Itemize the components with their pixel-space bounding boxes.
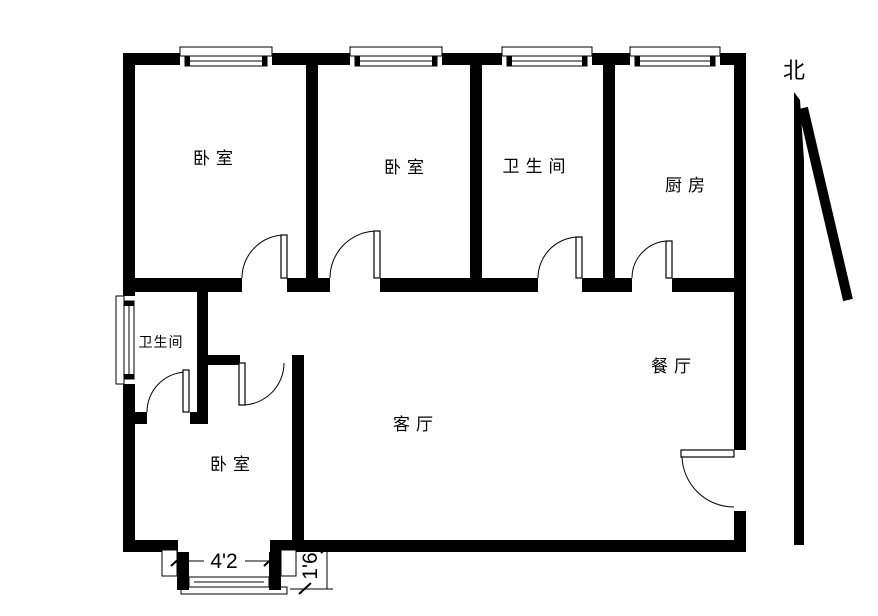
bay-window-frame-right (281, 550, 296, 576)
label-dining-room: 餐厅 (651, 357, 697, 377)
door-kitchen (666, 241, 672, 278)
door-bathroom-top (576, 237, 582, 278)
wall-main-seg5 (672, 278, 734, 292)
label-bathroom-left: 卫生间 (139, 335, 184, 351)
wall-bed2-bath (470, 65, 482, 278)
door-bathroom-left (183, 370, 189, 412)
floor-plan-page: 4'2 1'6 北 卧室 卧室 卫生间 厨房 卫生间 客厅 餐厅 卧室 (0, 0, 878, 616)
door-entry (681, 450, 734, 457)
window-left-bathroom (116, 296, 135, 384)
wall-bed1-bed2 (306, 65, 318, 278)
wall-right-upper (734, 53, 746, 450)
wall-main-seg1 (123, 278, 242, 292)
wall-bathleft-right (197, 292, 208, 424)
wall-bathleft-bottom-b (190, 412, 208, 424)
label-bathroom-top: 卫生间 (503, 157, 572, 177)
north-arrow-oblique (803, 108, 848, 300)
window-bedroom1-sill (180, 47, 272, 56)
label-bedroom-bottom: 卧室 (210, 455, 256, 475)
window-bathleft-sill (116, 296, 124, 384)
north-arrow-shaft (794, 92, 804, 545)
wall-bathleft-bottom-a (123, 412, 147, 424)
wall-main-seg3 (380, 278, 538, 292)
north-label: 北 (783, 59, 805, 84)
bay-depth-label: 1'6 (299, 552, 322, 579)
label-bedroom-top-left: 卧室 (193, 149, 239, 169)
bay-window-stub-right (269, 552, 281, 590)
door-bedroom-bottom (239, 363, 245, 405)
window-bathroom-sill (502, 47, 592, 56)
floor-plan-drawing: 4'2 1'6 北 卧室 卧室 卫生间 厨房 卫生间 客厅 餐厅 卧室 (0, 0, 878, 616)
window-bedroom2-sill (350, 47, 442, 56)
door-bedroom1 (281, 235, 287, 278)
walls (123, 53, 746, 552)
wall-main-seg4 (582, 278, 632, 292)
bay-width-label: 4'2 (210, 550, 237, 573)
wall-bottom-right-of-bay (270, 540, 746, 552)
wall-bath-kitchen (603, 65, 615, 278)
north-arrow: 北 (783, 59, 848, 545)
window-kitchen-sill (630, 47, 720, 56)
door-bedroom2 (374, 231, 380, 278)
wall-bed3-right (292, 355, 304, 552)
label-bedroom-top-middle: 卧室 (384, 158, 430, 178)
room-labels: 卧室 卧室 卫生间 厨房 卫生间 客厅 餐厅 卧室 (139, 149, 712, 475)
wall-bed3-top-stub (208, 355, 240, 365)
label-kitchen: 厨房 (665, 176, 711, 196)
wall-main-seg2 (287, 278, 330, 292)
label-living-room: 客厅 (393, 415, 439, 435)
